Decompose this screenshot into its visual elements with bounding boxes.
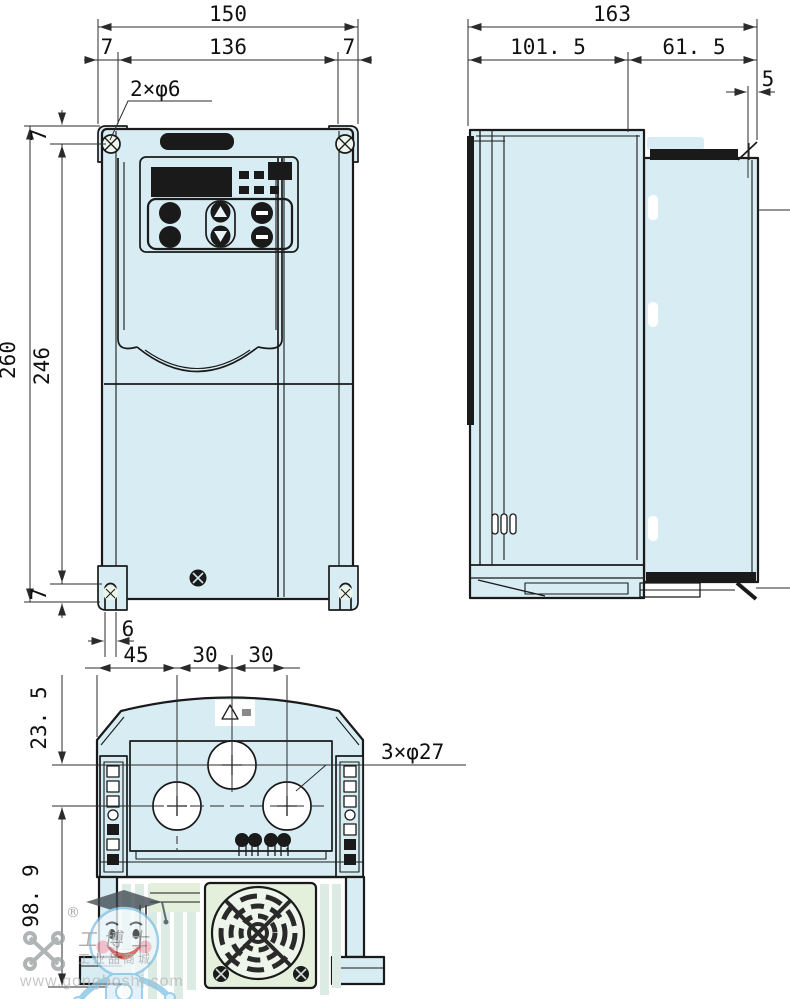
dim-front-width-inner: 136: [209, 35, 247, 59]
knockout-callout: 3×φ27: [381, 740, 444, 764]
side-slot-3: [648, 516, 658, 541]
mount-hole-callout: 2×φ6: [130, 77, 181, 101]
fan-screw-left-icon: [213, 966, 229, 982]
keypad-button-right-2: [251, 226, 273, 248]
dim-front-height-total: 260: [0, 341, 20, 379]
side-terminal-lip: [647, 137, 704, 150]
cooling-fan: [205, 883, 316, 988]
dim-bottom-row-pitch: 23. 5: [27, 686, 51, 749]
cover-screw-icon: [190, 570, 207, 587]
wrench-icon: [25, 933, 63, 969]
top-vent-slot: [160, 133, 234, 150]
dim-front-height-inner: 246: [30, 347, 54, 385]
mount-screw-top-right-icon: [336, 135, 354, 153]
dim-front-margin-right: 7: [343, 35, 356, 59]
fan-screw-right-icon: [293, 966, 309, 982]
keypad-button-left-2: [159, 226, 181, 248]
lcd-display: [151, 167, 232, 197]
keypad-button-left-1: [159, 202, 181, 224]
up-arrow-button: [211, 202, 231, 223]
dim-bottom-left-offset: 45: [123, 643, 148, 667]
keypad-button-right-1: [251, 202, 273, 224]
side-slot-1: [648, 195, 658, 220]
side-vent-slots: [492, 514, 516, 534]
dim-bottom-pitch-2: 30: [248, 643, 273, 667]
front-view: [98, 126, 358, 610]
dim-bottom-pitch-1: 30: [192, 643, 217, 667]
watermark-tagline: 工业品商城: [78, 951, 153, 966]
dim-side-depth-rear: 61. 5: [662, 35, 725, 59]
dim-side-depth-front: 101. 5: [510, 35, 586, 59]
side-slot-2: [648, 302, 658, 327]
dim-front-margin-bottom: 7: [27, 588, 51, 601]
technical-drawing-page: 150 136 7 7 2×φ6 260 246 7 7: [0, 0, 790, 999]
dim-side-step: 5: [762, 67, 775, 91]
down-arrow-button: [211, 226, 231, 247]
warning-label-box: [215, 700, 255, 726]
dim-bottom-lower-depth: 98. 9: [19, 864, 43, 927]
side-view: [467, 130, 790, 599]
side-keypad-edge: [467, 136, 474, 425]
dim-front-width-total: 150: [209, 2, 247, 26]
watermark-brand: 工博士: [77, 928, 158, 951]
side-rear-block: [644, 158, 758, 582]
dim-front-margin-left: 7: [101, 35, 114, 59]
registered-mark: ®: [66, 905, 80, 921]
dim-front-margin-top: 7: [27, 129, 51, 142]
terminal-rail-left: [100, 756, 127, 877]
component-box: [150, 883, 200, 912]
dim-side-depth-total: 163: [593, 2, 631, 26]
dimension-drawing-svg: 150 136 7 7 2×φ6 260 246 7 7: [0, 0, 790, 999]
mount-tab-bottom-right: [329, 566, 358, 610]
dim-front-slot-width: 6: [122, 617, 135, 641]
label-bar-icon: [242, 709, 251, 716]
watermark-url: www.gongboshi.com: [19, 973, 184, 990]
terminal-rail-right: [336, 756, 363, 877]
mount-tab-bottom-left: [98, 566, 127, 610]
